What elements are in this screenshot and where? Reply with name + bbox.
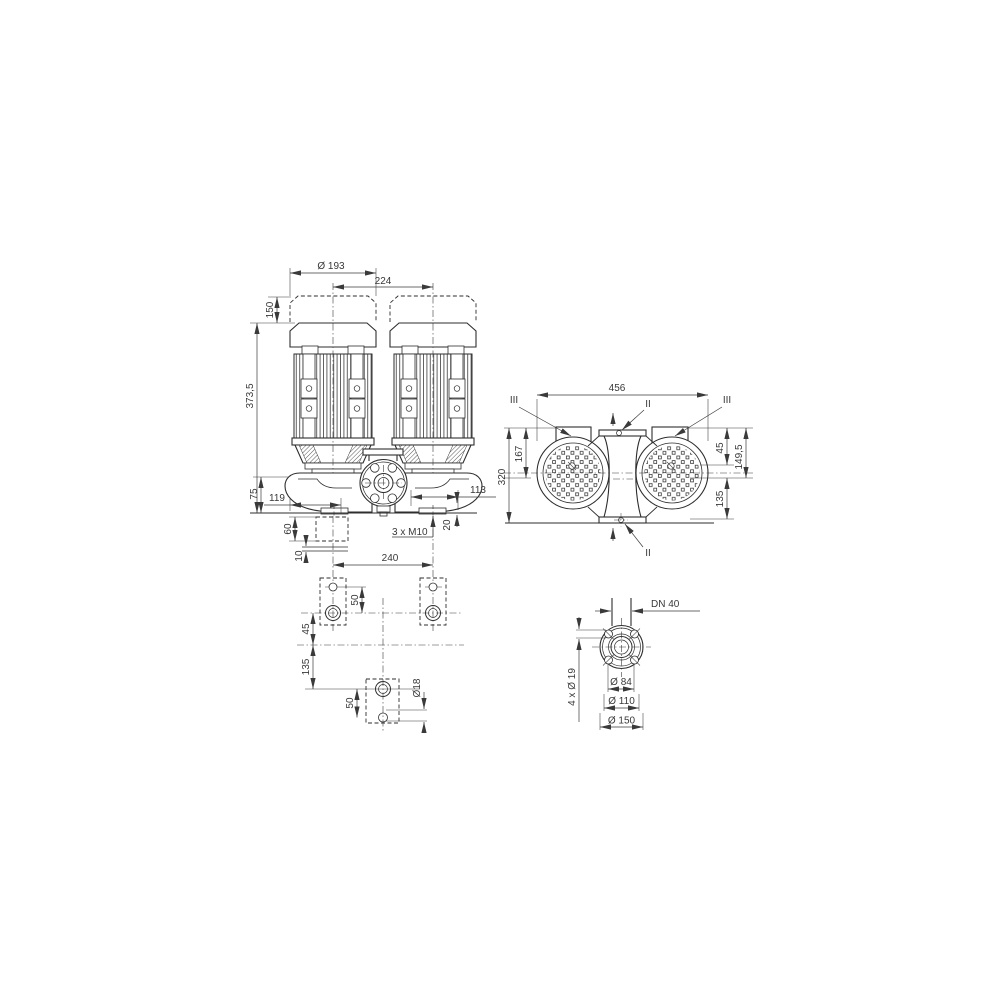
dim-motor-diameter: Ø 193 [317,261,345,272]
dim-foot-left: 119 [269,493,285,504]
label-section-iii-right: III [723,395,731,406]
dim-raised-face: Ø 84 [610,677,632,688]
side-view: 456 320 167 45 149,5 135 III III II II [497,383,753,559]
label-section-iii-left: III [510,395,518,406]
dim-hole-diameter: Ø18 [412,678,423,697]
label-section-ii-top: II [645,399,651,410]
dim-bolt-circle: Ø 110 [608,696,635,707]
dim-pump-spacing: 224 [375,276,392,287]
dim-top-to-axis: 167 [514,445,525,462]
dim-foot-thickness: 20 [442,519,453,531]
label-section-ii-bottom: II [645,548,651,559]
dim-foot-right: 113 [470,485,486,496]
dim-removal-space: 150 [265,301,276,318]
dim-flange-height: 149,5 [734,444,745,469]
dim-overall-width: 456 [609,383,626,394]
dim-hole-pitch-top: 50 [350,594,361,606]
dim-block-height: 60 [283,523,294,535]
dimension-drawing-page: Ø 193 224 150 373,5 75 119 60 10 [0,0,1000,1000]
dim-anchor-spacing: 240 [382,553,399,564]
dim-axis-offset: 45 [715,442,726,454]
dim-hole-pitch-bottom: 50 [345,697,356,709]
dim-axis-to-base: 135 [715,490,726,507]
foundation-plan: 50 45 135 50 Ø18 [297,578,464,731]
foundation-block [316,517,348,541]
dim-base-height: 75 [249,488,260,500]
dim-overall-height: 320 [497,468,508,485]
flange-detail: DN 40 4 x Ø 19 Ø 84 Ø 110 Ø 150 [567,598,700,730]
plan-dimensions: 50 45 135 50 Ø18 [301,587,424,731]
front-view: Ø 193 224 150 373,5 75 119 60 10 [245,261,496,631]
dim-axis-to-hole: 135 [301,658,312,675]
dim-hole-to-axis: 45 [301,623,312,635]
side-dimensions: 456 320 167 45 149,5 135 III III II II [497,383,746,559]
label-tapped-holes: 3 x M10 [392,527,428,538]
dim-nominal-diameter: DN 40 [651,599,680,610]
dim-outer-diameter: Ø 150 [608,716,636,727]
dim-total-height: 373,5 [245,383,256,408]
dim-bolt-holes: 4 x Ø 19 [567,668,578,706]
pump-dimension-drawing: Ø 193 224 150 373,5 75 119 60 10 [0,0,1000,1000]
dim-grout-thickness: 10 [294,550,305,562]
